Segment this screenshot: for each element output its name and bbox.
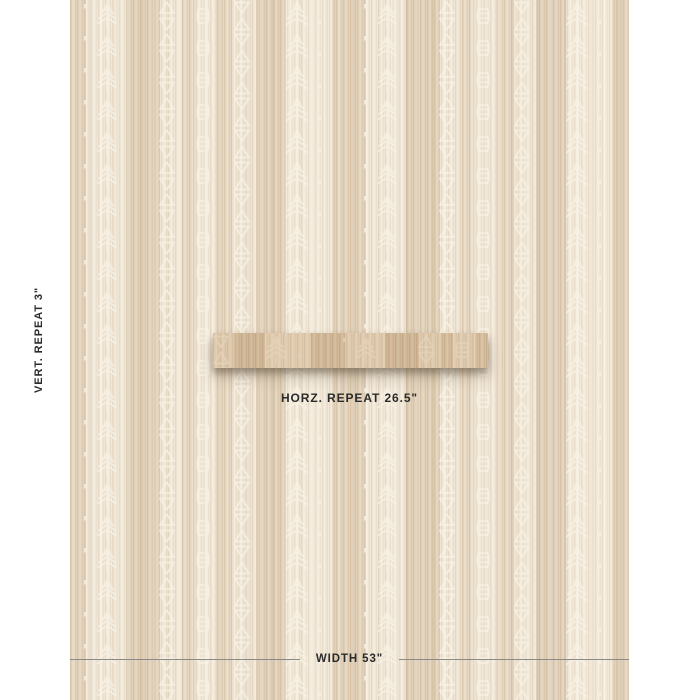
strip-tint-overlay (213, 333, 488, 368)
horizontal-repeat-strip (213, 333, 488, 368)
width-annotation-row: WIDTH 53" (70, 652, 629, 666)
product-swatch-page: VERT. REPEAT 3" HORZ. REPEAT 26.5" WIDTH… (0, 0, 700, 700)
width-rule-right (399, 659, 629, 660)
horizontal-repeat-label: HORZ. REPEAT 26.5" (70, 391, 629, 405)
width-rule-left (70, 659, 300, 660)
vertical-repeat-label: VERT. REPEAT 3" (33, 287, 45, 393)
width-label: WIDTH 53" (300, 653, 399, 665)
